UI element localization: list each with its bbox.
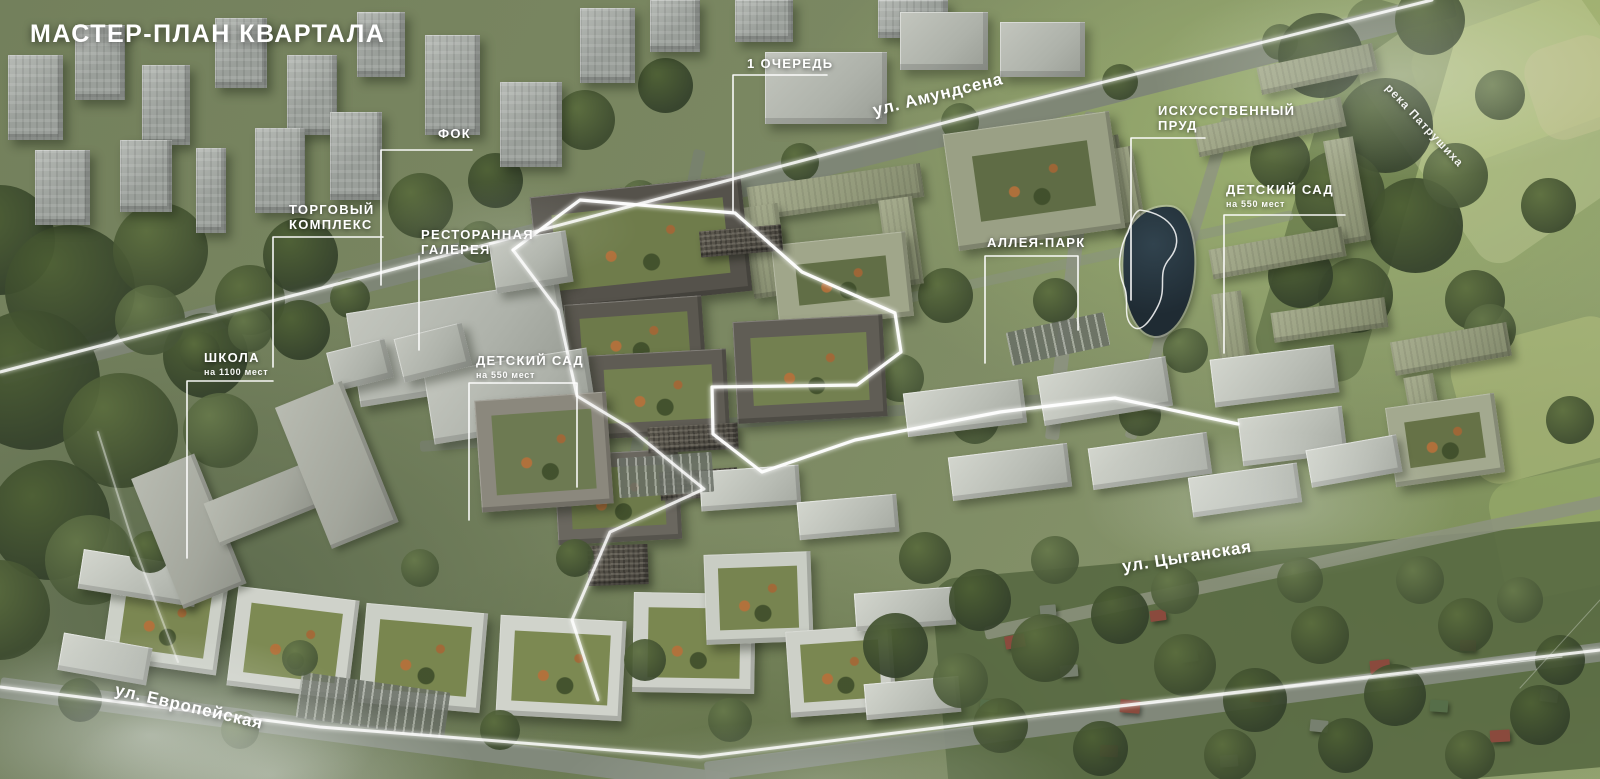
callout-phase1-label: 1 ОЧЕРЕДЬ bbox=[747, 57, 833, 72]
street-label-evropeyskaya: ул. Европейская bbox=[113, 680, 265, 734]
callout-shopping-complex: ТОРГОВЫЙ КОМПЛЕКС bbox=[289, 203, 375, 232]
callout-school: ШКОЛА на 1100 мест bbox=[204, 351, 268, 377]
callout-phase1: 1 ОЧЕРЕДЬ bbox=[747, 57, 833, 72]
annotation-labels: МАСТЕР-ПЛАН КВАРТАЛА 1 ОЧЕРЕДЬ ФОК ТОРГО… bbox=[0, 0, 1600, 779]
callout-kindergarten-left-sub: на 550 мест bbox=[476, 370, 584, 380]
callout-pond-line1: ИСКУССТВЕННЫЙ bbox=[1158, 104, 1295, 119]
callout-kindergarten-right-sub: на 550 мест bbox=[1226, 199, 1334, 209]
master-plan-canvas: МАСТЕР-ПЛАН КВАРТАЛА 1 ОЧЕРЕДЬ ФОК ТОРГО… bbox=[0, 0, 1600, 779]
callout-fok: ФОК bbox=[438, 127, 471, 142]
callout-kindergarten-left-label: ДЕТСКИЙ САД bbox=[476, 354, 584, 369]
callout-alley-park: АЛЛЕЯ-ПАРК bbox=[987, 236, 1085, 251]
street-label-tsyganskaya: ул. Цыганская bbox=[1121, 537, 1253, 577]
callout-kindergarten-right-label: ДЕТСКИЙ САД bbox=[1226, 183, 1334, 198]
river-label-patrushikha: река Патрушиха bbox=[1383, 82, 1466, 170]
callout-school-sub: на 1100 мест bbox=[204, 367, 268, 377]
page-title: МАСТЕР-ПЛАН КВАРТАЛА bbox=[30, 20, 385, 49]
callout-restaurant-gallery: РЕСТОРАННАЯ ГАЛЕРЕЯ bbox=[421, 228, 534, 257]
callout-alley-park-label: АЛЛЕЯ-ПАРК bbox=[987, 236, 1085, 251]
callout-restaurant-line2: ГАЛЕРЕЯ bbox=[421, 243, 534, 258]
callout-school-label: ШКОЛА bbox=[204, 351, 268, 366]
street-label-amundsena: ул. Амундсена bbox=[871, 69, 1005, 121]
callout-shopping-line2: КОМПЛЕКС bbox=[289, 218, 375, 233]
callout-fok-label: ФОК bbox=[438, 127, 471, 142]
callout-shopping-line1: ТОРГОВЫЙ bbox=[289, 203, 375, 218]
callout-kindergarten-left: ДЕТСКИЙ САД на 550 мест bbox=[476, 354, 584, 380]
callout-restaurant-line1: РЕСТОРАННАЯ bbox=[421, 228, 534, 243]
callout-kindergarten-right: ДЕТСКИЙ САД на 550 мест bbox=[1226, 183, 1334, 209]
callout-artificial-pond: ИСКУССТВЕННЫЙ ПРУД bbox=[1158, 104, 1295, 133]
callout-pond-line2: ПРУД bbox=[1158, 119, 1295, 134]
